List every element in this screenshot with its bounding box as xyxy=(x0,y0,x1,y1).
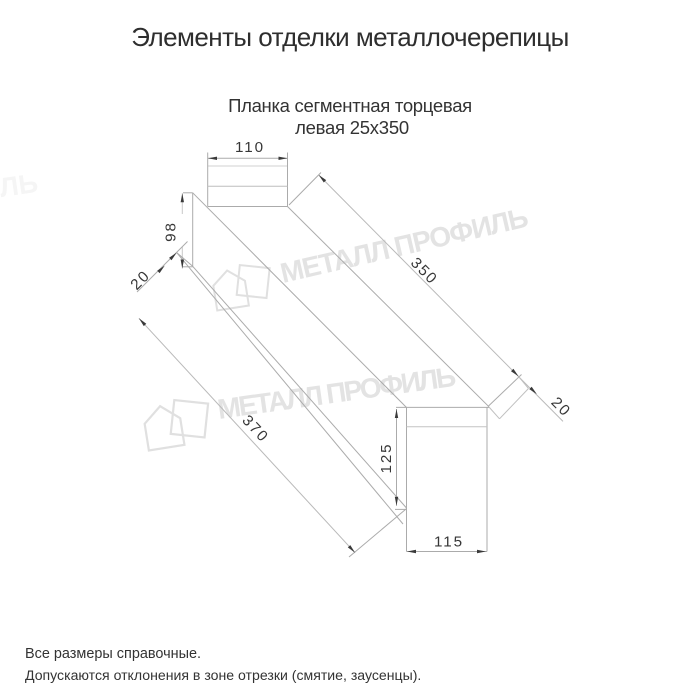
svg-text:125: 125 xyxy=(378,442,395,473)
svg-text:115: 115 xyxy=(434,534,464,551)
svg-text:350: 350 xyxy=(407,254,441,288)
svg-text:20: 20 xyxy=(127,267,154,294)
svg-text:ЛЬ: ЛЬ xyxy=(0,168,40,203)
svg-text:110: 110 xyxy=(235,139,265,156)
svg-text:МЕТАЛЛ ПРОФИЛЬ: МЕТАЛЛ ПРОФИЛЬ xyxy=(277,202,531,289)
svg-text:20: 20 xyxy=(548,394,575,421)
svg-text:98: 98 xyxy=(163,221,180,242)
